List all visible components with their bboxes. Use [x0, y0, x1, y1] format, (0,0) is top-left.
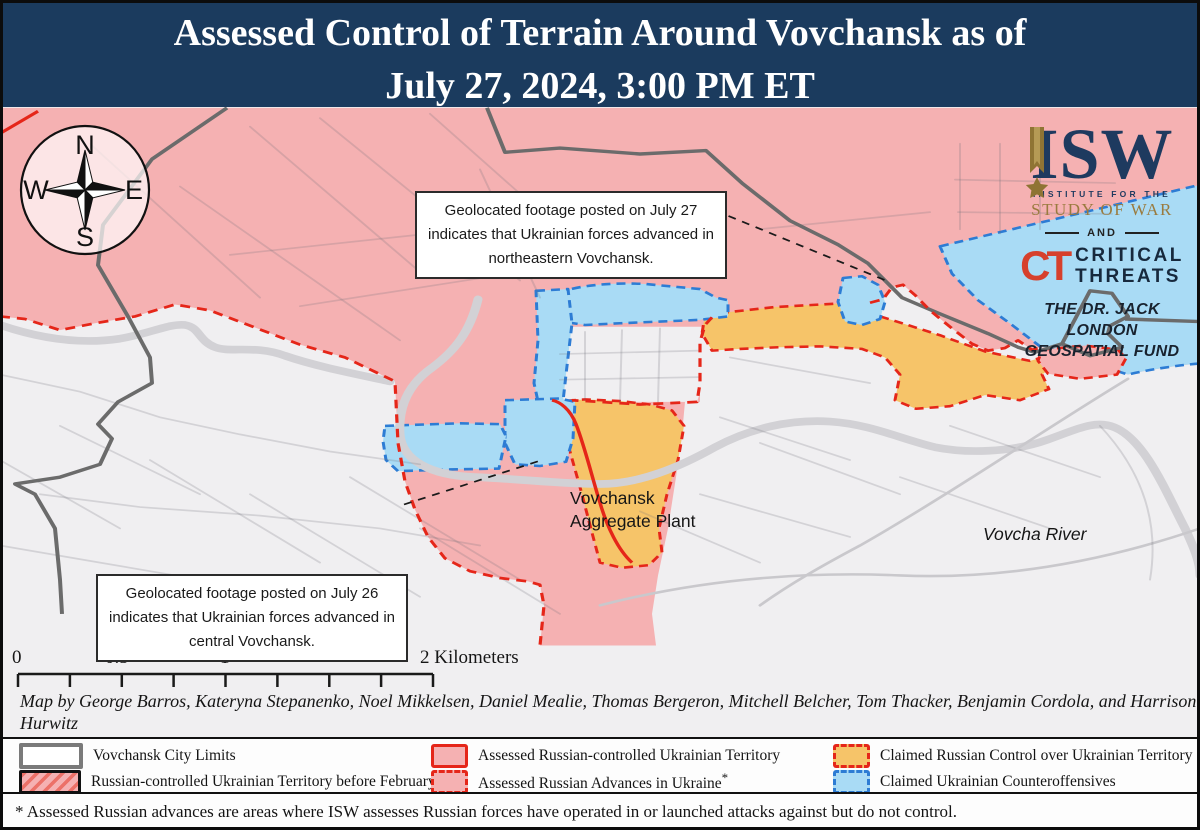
and-divider: AND [1018, 227, 1186, 239]
legend: Vovchansk City Limits Russian-controlled… [3, 737, 1197, 794]
critical-threats-logo: CT CRITICAL THREATS [1018, 245, 1186, 287]
legend-item-russian-controlled: Assessed Russian-controlled Ukrainian Te… [431, 744, 780, 768]
russian-advances-swatch [431, 770, 468, 794]
legend-item-claimed-ukrainian: Claimed Ukrainian Counteroffensives [833, 770, 1116, 794]
isw-logo: ISW [1030, 121, 1173, 187]
footnote-text: * Assessed Russian advances are areas wh… [3, 802, 957, 822]
isw-acronym: ISW [1030, 114, 1173, 194]
title-line-1: Assessed Control of Terrain Around Vovch… [3, 3, 1197, 56]
ct-name-line-2: THREATS [1075, 266, 1184, 287]
isw-ribbon-icon [1024, 125, 1050, 203]
map-canvas: N E S W ISW INSTITUTE FOR THE STUDY OF W… [0, 107, 1200, 737]
ct-name-line-1: CRITICAL [1075, 245, 1184, 266]
geospatial-fund-text: THE DR. JACK LONDON GEOSPATIAL FUND [1018, 299, 1186, 362]
scale-tick-2km: 2 Kilometers [420, 647, 519, 669]
credits-authors: Map by George Barros, Kateryna Stepanenk… [20, 690, 1200, 734]
city-limits-swatch [19, 743, 83, 769]
russian-controlled-swatch [431, 744, 468, 768]
isw-study-of-war-text: STUDY OF WAR [1018, 200, 1186, 220]
vovcha-river-label: Vovcha River [983, 523, 1086, 546]
legend-item-city-limits: Vovchansk City Limits [19, 744, 236, 768]
aggregate-plant-label: Vovchansk Aggregate Plant [570, 487, 696, 533]
compass-north-label: N [75, 130, 95, 160]
claimed-ukrainian-swatch [833, 770, 870, 794]
compass-south-label: S [76, 222, 94, 252]
uncontrolled-gap-center [553, 327, 720, 402]
and-label: AND [1087, 227, 1117, 239]
claimed-russian-swatch [833, 744, 870, 768]
footnote-asterisk: * [722, 770, 729, 785]
legend-item-claimed-russian: Claimed Russian Control over Ukrainian T… [833, 744, 1192, 768]
ct-monogram: CT [1020, 246, 1068, 286]
legend-item-russian-advances: Assessed Russian Advances in Ukraine* [431, 770, 728, 794]
legend-item-pre-feb24: Russian-controlled Ukrainian Territory b… [19, 770, 455, 794]
compass-west-label: W [23, 175, 49, 205]
compass-rose: N E S W [15, 120, 155, 260]
annotation-july27: Geolocated footage posted on July 27 ind… [415, 191, 727, 279]
title-line-2: July 27, 2024, 3:00 PM ET [3, 56, 1197, 109]
scale-tick-0: 0 [12, 647, 22, 669]
compass-east-label: E [125, 175, 143, 205]
logo-block: ISW INSTITUTE FOR THE STUDY OF WAR AND C… [1018, 121, 1186, 362]
annotation-july26: Geolocated footage posted on July 26 ind… [96, 574, 408, 662]
title-banner: Assessed Control of Terrain Around Vovch… [3, 3, 1197, 107]
pre-feb24-swatch [19, 770, 81, 794]
footnote-bar: * Assessed Russian advances are areas wh… [3, 792, 1197, 829]
